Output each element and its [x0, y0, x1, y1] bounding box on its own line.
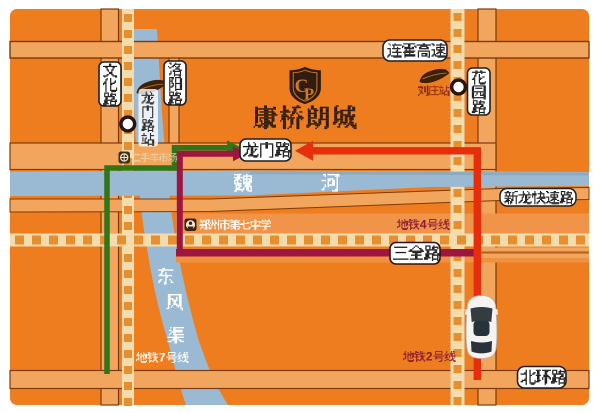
svg-text:P: P: [304, 85, 314, 104]
svg-text:2: 2: [426, 350, 433, 364]
svg-text:4: 4: [420, 218, 427, 232]
svg-text:7: 7: [159, 351, 166, 365]
